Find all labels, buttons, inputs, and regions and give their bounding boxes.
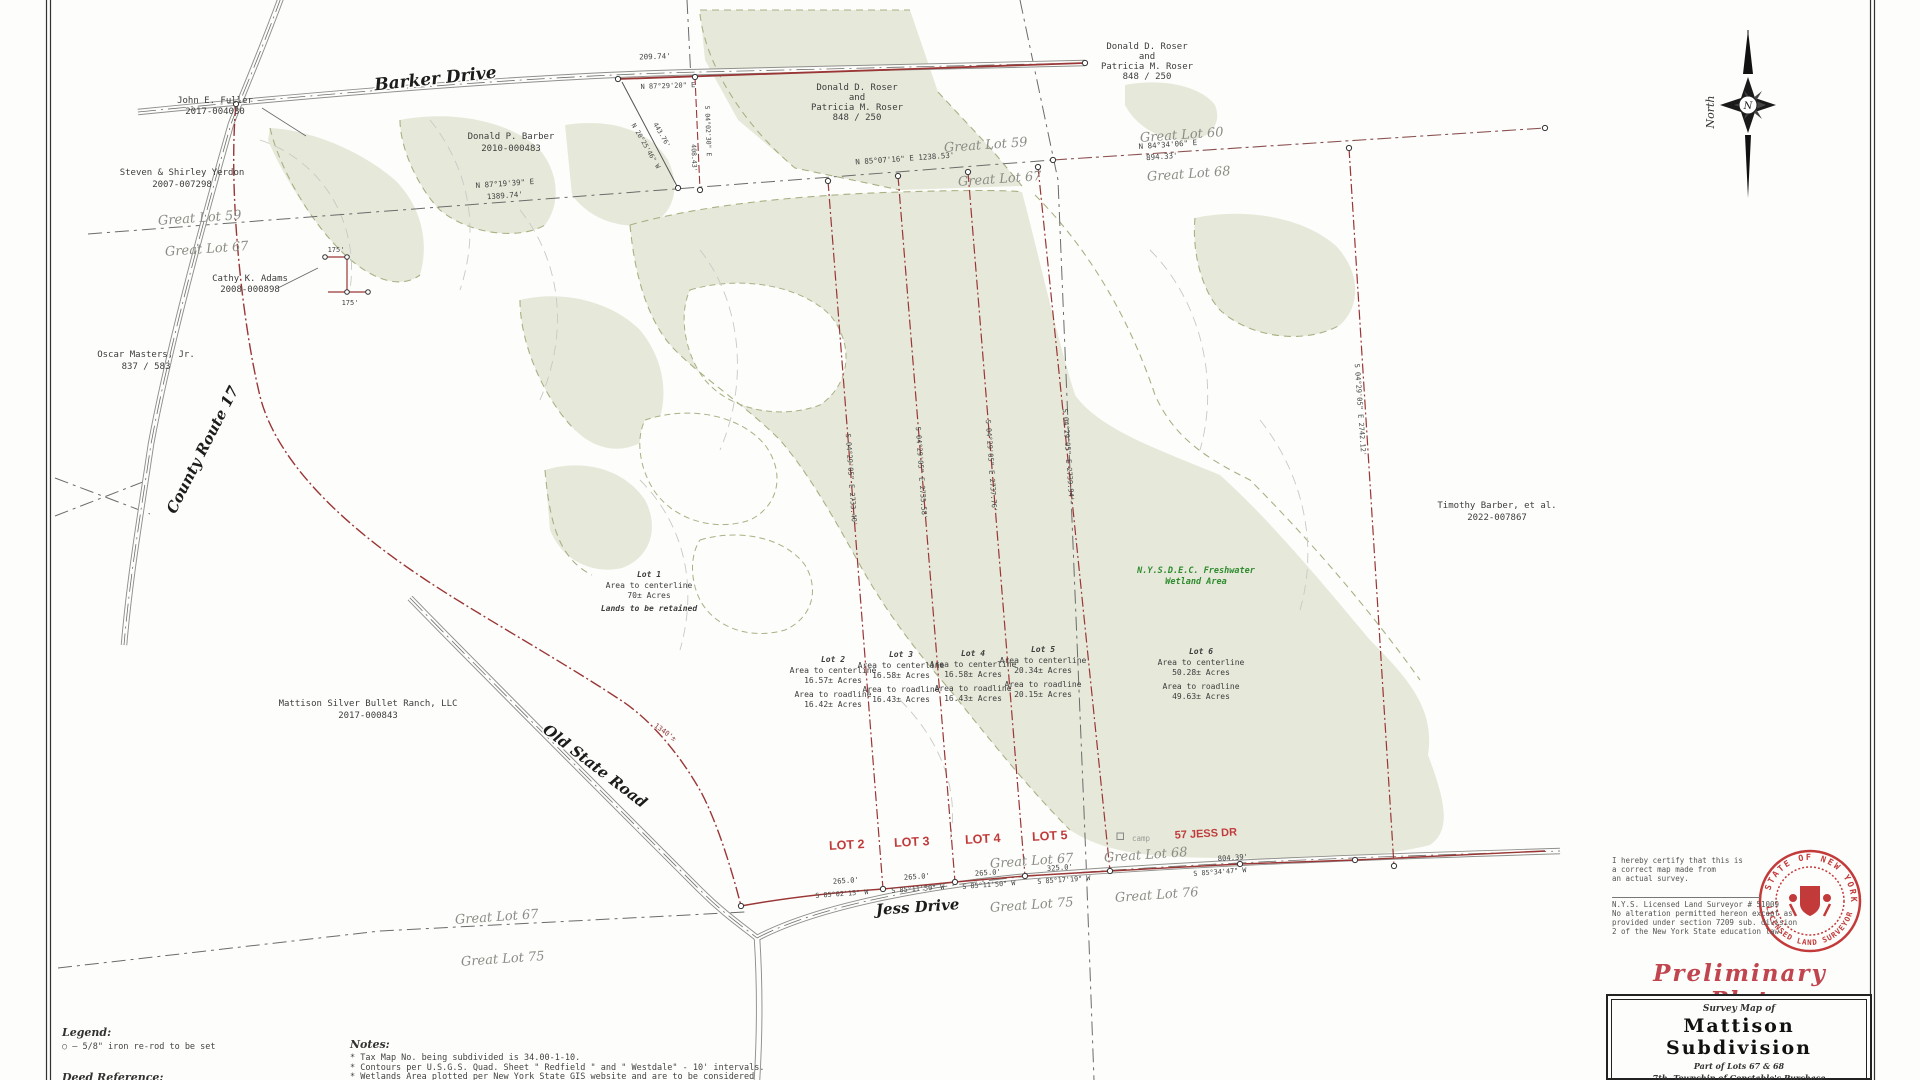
svg-text:Patricia M. Roser: Patricia M. Roser: [1101, 62, 1194, 72]
svg-text:49.63± Acres: 49.63± Acres: [1172, 692, 1230, 701]
svg-text:265.0': 265.0': [833, 875, 860, 886]
svg-text:LOT 5: LOT 5: [1032, 828, 1068, 844]
svg-text:Area to centerline: Area to centerline: [1000, 656, 1087, 665]
svg-text:S 04°29'05" E 2742.12': S 04°29'05" E 2742.12': [1353, 363, 1367, 456]
svg-text:Oscar Masters, Jr.: Oscar Masters, Jr.: [97, 350, 195, 360]
title-block: Survey Map of Mattison Subdivision Part …: [1606, 994, 1872, 1080]
svg-text:70± Acres: 70± Acres: [627, 591, 671, 600]
svg-text:408.43': 408.43': [690, 144, 699, 172]
svg-text:Timothy Barber, et al.: Timothy Barber, et al.: [1437, 501, 1556, 511]
legend-block: Legend: ○ — 5/8" iron re-rod to be set D…: [62, 1026, 216, 1080]
svg-text:Great Lot 68: Great Lot 68: [1146, 164, 1231, 185]
svg-text:Great Lot 76: Great Lot 76: [1114, 885, 1199, 906]
north-arrow: N North: [1704, 30, 1776, 198]
svg-text:Cathy K. Adams: Cathy K. Adams: [212, 274, 288, 284]
cert-alteration-line: provided under section 7209 sub. divisio…: [1612, 918, 1797, 927]
svg-text:Patricia M. Roser: Patricia M. Roser: [811, 103, 904, 113]
svg-text:S 04°02'30" E: S 04°02'30" E: [703, 105, 713, 156]
svg-text:LOT 3: LOT 3: [894, 834, 930, 850]
compass-letter: N: [1743, 101, 1754, 112]
svg-text:16.57± Acres: 16.57± Acres: [804, 676, 862, 685]
svg-text:Mattison Silver Bullet Ranch,: Mattison Silver Bullet Ranch, LLC: [279, 699, 458, 709]
svg-text:Great Lot 75: Great Lot 75: [989, 895, 1074, 916]
svg-text:16.43± Acres: 16.43± Acres: [944, 694, 1002, 703]
road-label-county17: County Route 17: [163, 383, 243, 517]
svg-text:894.33': 894.33': [1146, 151, 1178, 162]
svg-text:Donald D. Roser: Donald D. Roser: [1106, 42, 1188, 52]
svg-text:2007-007298: 2007-007298: [152, 180, 212, 190]
svg-text:and: and: [849, 93, 865, 103]
svg-text:LOT 2: LOT 2: [829, 837, 865, 853]
svg-text:325.0': 325.0': [1047, 862, 1074, 873]
surveyor-license: N.Y.S. Licensed Land Surveyor # 51009: [1612, 900, 1797, 909]
svg-text:175': 175': [342, 299, 359, 307]
svg-text:Lot 4: Lot 4: [961, 649, 985, 658]
cert-alteration-line: 2 of the New York State education law.: [1612, 927, 1797, 936]
svg-text:20.15± Acres: 20.15± Acres: [1014, 690, 1072, 699]
svg-text:Area to roadline: Area to roadline: [1162, 682, 1239, 691]
svg-text:Donald P. Barber: Donald P. Barber: [468, 132, 555, 142]
svg-text:2017-000843: 2017-000843: [338, 711, 398, 721]
svg-text:Steven & Shirley Yerdon: Steven & Shirley Yerdon: [120, 168, 245, 178]
seal-emblem: [1800, 886, 1820, 916]
svg-text:50.28± Acres: 50.28± Acres: [1172, 668, 1230, 677]
cert-line: I hereby certify that this is: [1612, 856, 1797, 865]
svg-text:and: and: [1139, 52, 1155, 62]
road-label-barker: Barker Drive: [372, 63, 497, 96]
plat-sheet: N North STATE OF NEW YORK LICENSED LAND …: [0, 0, 1920, 1080]
svg-text:Area to centerline: Area to centerline: [606, 581, 693, 590]
svg-text:John E. Fuller: John E. Fuller: [177, 96, 253, 106]
svg-text:Lot 1: Lot 1: [637, 570, 661, 579]
note-wetlands: * Wetlands Area plotted per New York Sta…: [350, 1073, 765, 1080]
camp-label: camp: [1132, 834, 1151, 843]
compass-north-label: North: [1704, 95, 1717, 129]
title-township: 7th. Township of Constable's Purchase: [1612, 1073, 1866, 1080]
legend-deed-reference: Deed Reference:: [62, 1071, 216, 1080]
svg-text:Area to roadline: Area to roadline: [934, 684, 1011, 693]
svg-text:N.Y.S.D.E.C. Freshwater: N.Y.S.D.E.C. Freshwater: [1136, 566, 1256, 576]
svg-text:848 / 250: 848 / 250: [833, 113, 882, 123]
cert-line: an actual survey.: [1612, 874, 1797, 883]
svg-text:Area to centerline: Area to centerline: [1158, 658, 1245, 667]
cert-alteration-line: No alteration permitted hereon except as: [1612, 909, 1797, 918]
signature-line: [1612, 897, 1760, 898]
svg-text:Great Lot 75: Great Lot 75: [460, 949, 545, 970]
wetland-areas: [268, 10, 1444, 859]
svg-text:Lot 6: Lot 6: [1189, 647, 1213, 656]
svg-text:Wetland Area: Wetland Area: [1165, 577, 1226, 587]
svg-text:20.34± Acres: 20.34± Acres: [1014, 666, 1072, 675]
legend-title: Legend:: [62, 1026, 216, 1039]
certification-block: I hereby certify that this is a correct …: [1612, 856, 1797, 936]
svg-text:S 85°02'15" W: S 85°02'15" W: [815, 888, 870, 900]
svg-text:N 87°29'20" E: N 87°29'20" E: [640, 81, 695, 91]
svg-text:Area to roadline: Area to roadline: [794, 690, 871, 699]
title-block-inner: Survey Map of Mattison Subdivision Part …: [1611, 999, 1867, 1080]
svg-text:2022-007867: 2022-007867: [1467, 513, 1527, 523]
great-lot-line-60-68: [1053, 128, 1545, 160]
svg-text:2008-000898: 2008-000898: [220, 285, 280, 295]
svg-text:Lot 5: Lot 5: [1031, 645, 1055, 654]
svg-text:Great Lot 59: Great Lot 59: [157, 208, 242, 229]
subdivision-title: Mattison Subdivision: [1612, 1015, 1866, 1059]
svg-text:2017-004030: 2017-004030: [185, 107, 245, 117]
svg-text:Area to roadline: Area to roadline: [862, 685, 939, 694]
title-part-of-lots: Part of Lots 67 & 68: [1612, 1061, 1866, 1071]
svg-text:Great Lot 67: Great Lot 67: [454, 907, 539, 928]
svg-text:265.0': 265.0': [975, 867, 1002, 878]
svg-text:LOT 4: LOT 4: [965, 831, 1001, 847]
svg-text:Great Lot 67: Great Lot 67: [164, 239, 249, 260]
svg-text:Lot 3: Lot 3: [889, 650, 913, 659]
svg-text:209.74': 209.74': [639, 51, 671, 61]
svg-text:265.0': 265.0': [904, 871, 931, 882]
title-kicker: Survey Map of: [1612, 1004, 1866, 1014]
road-label-old-state: Old State Road: [539, 720, 651, 811]
notes-block: Notes: * Tax Map No. being subdivided is…: [350, 1038, 765, 1080]
notes-title: Notes:: [350, 1038, 765, 1051]
svg-text:16.43± Acres: 16.43± Acres: [872, 695, 930, 704]
legend-iron-rod: ○ — 5/8" iron re-rod to be set: [62, 1043, 216, 1053]
cert-line: a correct map made from: [1612, 865, 1797, 874]
svg-text:Donald D. Roser: Donald D. Roser: [816, 83, 898, 93]
svg-text:Area to roadline: Area to roadline: [1004, 680, 1081, 689]
svg-text:16.58± Acres: 16.58± Acres: [944, 670, 1002, 679]
svg-text:837 / 583: 837 / 583: [122, 362, 171, 372]
svg-text:16.42± Acres: 16.42± Acres: [804, 700, 862, 709]
svg-text:175': 175': [328, 246, 345, 254]
svg-text:Lot 2: Lot 2: [821, 655, 845, 664]
svg-text:848 / 250: 848 / 250: [1123, 72, 1172, 82]
svg-text:Lands to be retained: Lands to be retained: [601, 603, 698, 613]
svg-text:2010-000483: 2010-000483: [481, 144, 541, 154]
svg-text:16.58± Acres: 16.58± Acres: [872, 671, 930, 680]
